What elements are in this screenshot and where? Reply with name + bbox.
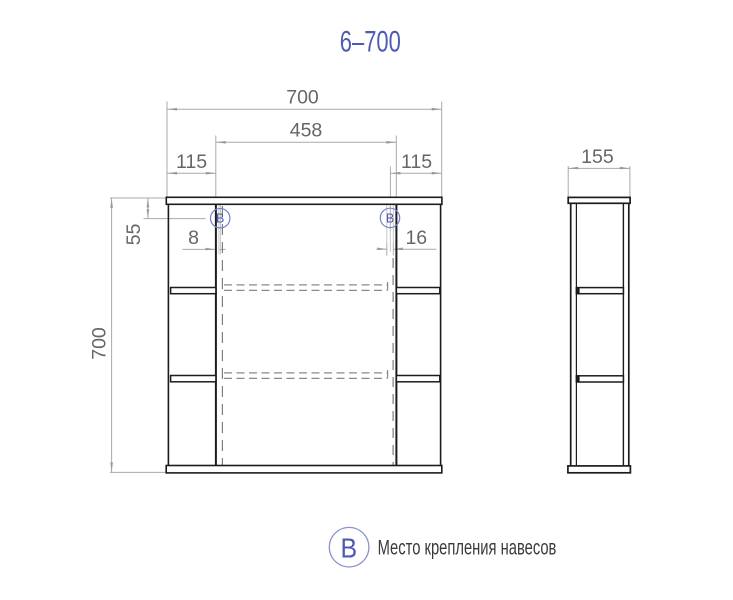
svg-text:Место крепления навесов: Место крепления навесов bbox=[378, 537, 557, 560]
svg-text:155: 155 bbox=[581, 146, 614, 168]
svg-text:115: 115 bbox=[176, 151, 207, 173]
svg-text:6–700: 6–700 bbox=[340, 25, 401, 58]
svg-text:55: 55 bbox=[123, 223, 145, 245]
svg-text:В: В bbox=[386, 211, 394, 225]
svg-text:115: 115 bbox=[401, 151, 432, 173]
svg-text:16: 16 bbox=[405, 227, 427, 249]
svg-text:700: 700 bbox=[88, 327, 110, 360]
svg-text:В: В bbox=[341, 533, 358, 564]
svg-text:700: 700 bbox=[286, 86, 319, 108]
svg-text:458: 458 bbox=[290, 120, 323, 142]
svg-text:В: В bbox=[216, 212, 224, 226]
svg-text:8: 8 bbox=[188, 227, 199, 249]
